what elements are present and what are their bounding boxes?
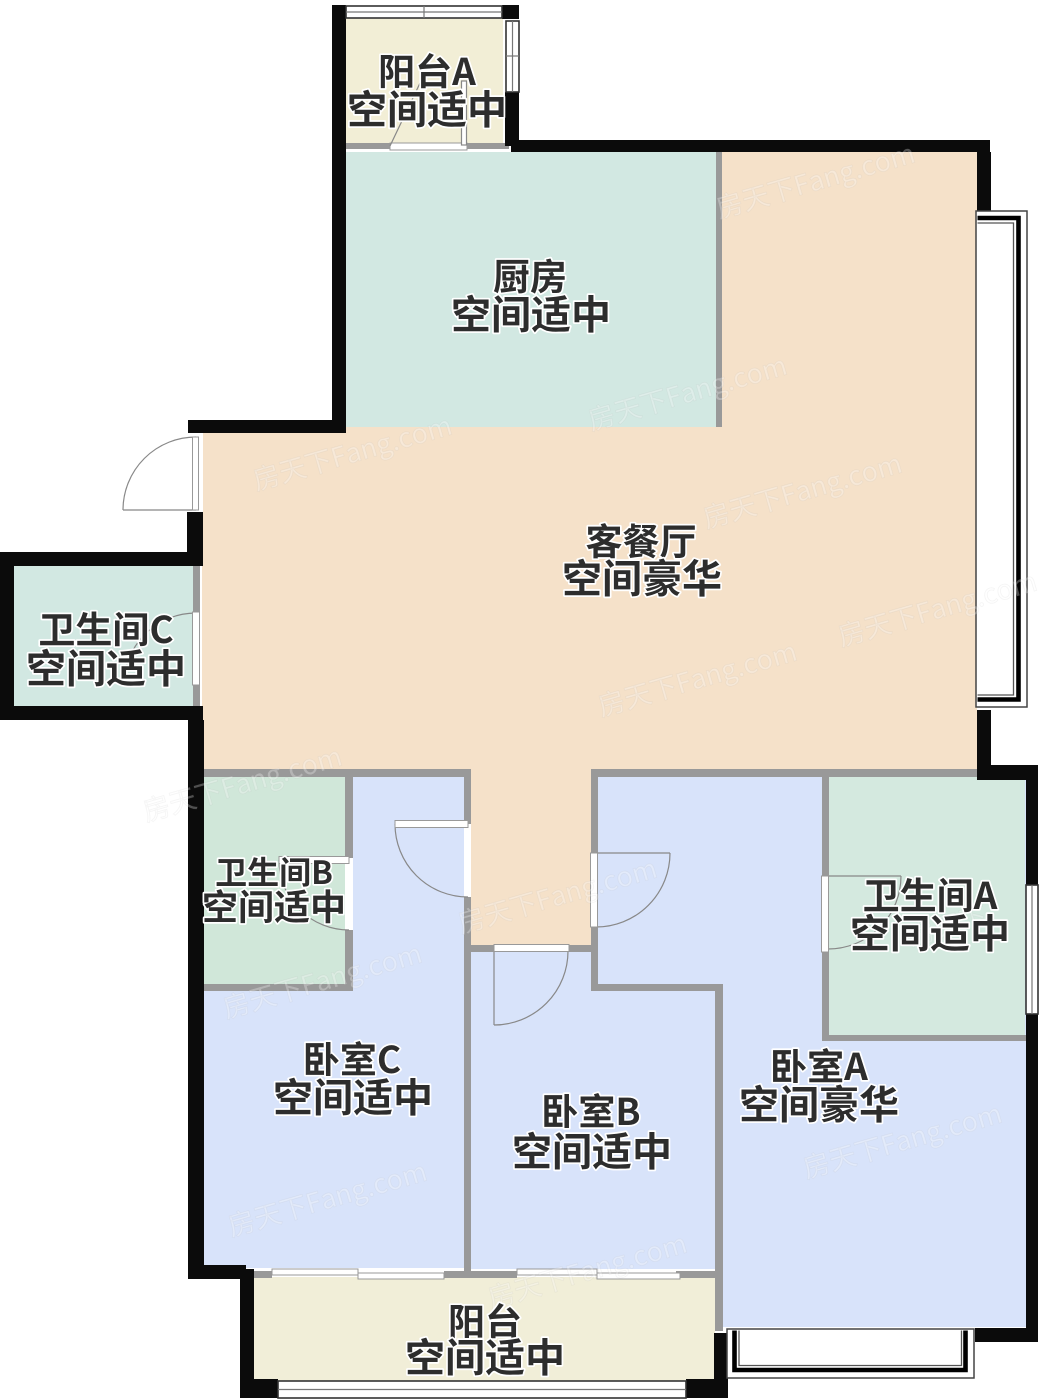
svg-text:空间适中: 空间适中 <box>26 637 186 695</box>
svg-text:空间豪华: 空间豪华 <box>562 547 722 605</box>
svg-text:空间适中: 空间适中 <box>202 879 346 931</box>
svg-text:空间适中: 空间适中 <box>850 902 1010 960</box>
svg-text:空间适中: 空间适中 <box>451 283 611 341</box>
svg-text:空间适中: 空间适中 <box>512 1120 672 1178</box>
svg-text:空间适中: 空间适中 <box>273 1066 433 1124</box>
svg-text:空间豪华: 空间豪华 <box>739 1073 899 1131</box>
svg-text:空间适中: 空间适中 <box>405 1326 565 1384</box>
svg-text:空间适中: 空间适中 <box>347 78 507 136</box>
